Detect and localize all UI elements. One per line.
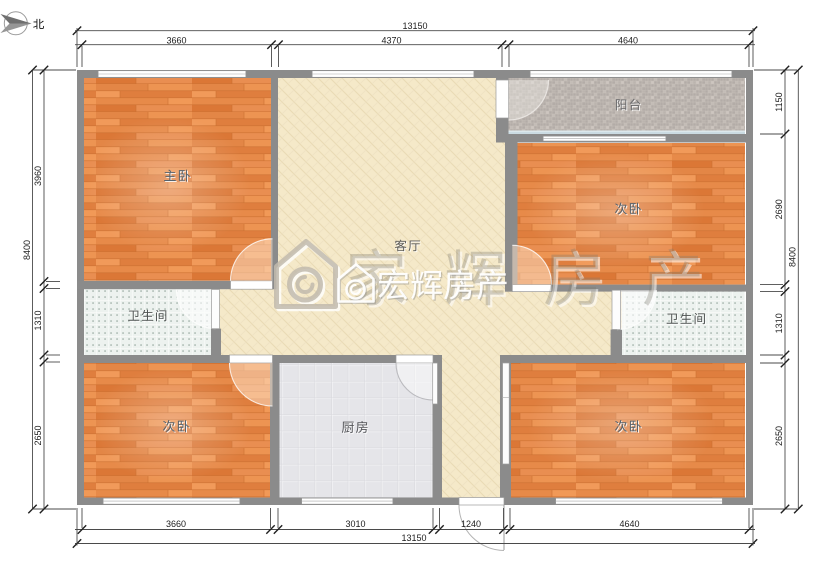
svg-text:8400: 8400 (22, 240, 32, 260)
svg-text:1310: 1310 (774, 313, 784, 333)
svg-text:2650: 2650 (33, 425, 43, 445)
svg-text:4640: 4640 (619, 519, 639, 529)
svg-text:13150: 13150 (401, 533, 426, 543)
svg-text:3010: 3010 (345, 519, 365, 529)
svg-text:1240: 1240 (461, 519, 481, 529)
svg-text:4370: 4370 (381, 35, 401, 45)
svg-text:2650: 2650 (774, 426, 784, 446)
svg-text:3660: 3660 (166, 35, 186, 45)
svg-text:1310: 1310 (33, 310, 43, 330)
svg-text:3660: 3660 (166, 519, 186, 529)
svg-text:1150: 1150 (774, 92, 784, 111)
svg-text:3960: 3960 (33, 166, 43, 186)
svg-text:13150: 13150 (402, 21, 427, 31)
svg-text:2690: 2690 (774, 199, 784, 219)
svg-text:4640: 4640 (618, 35, 638, 45)
svg-text:8400: 8400 (787, 247, 797, 267)
